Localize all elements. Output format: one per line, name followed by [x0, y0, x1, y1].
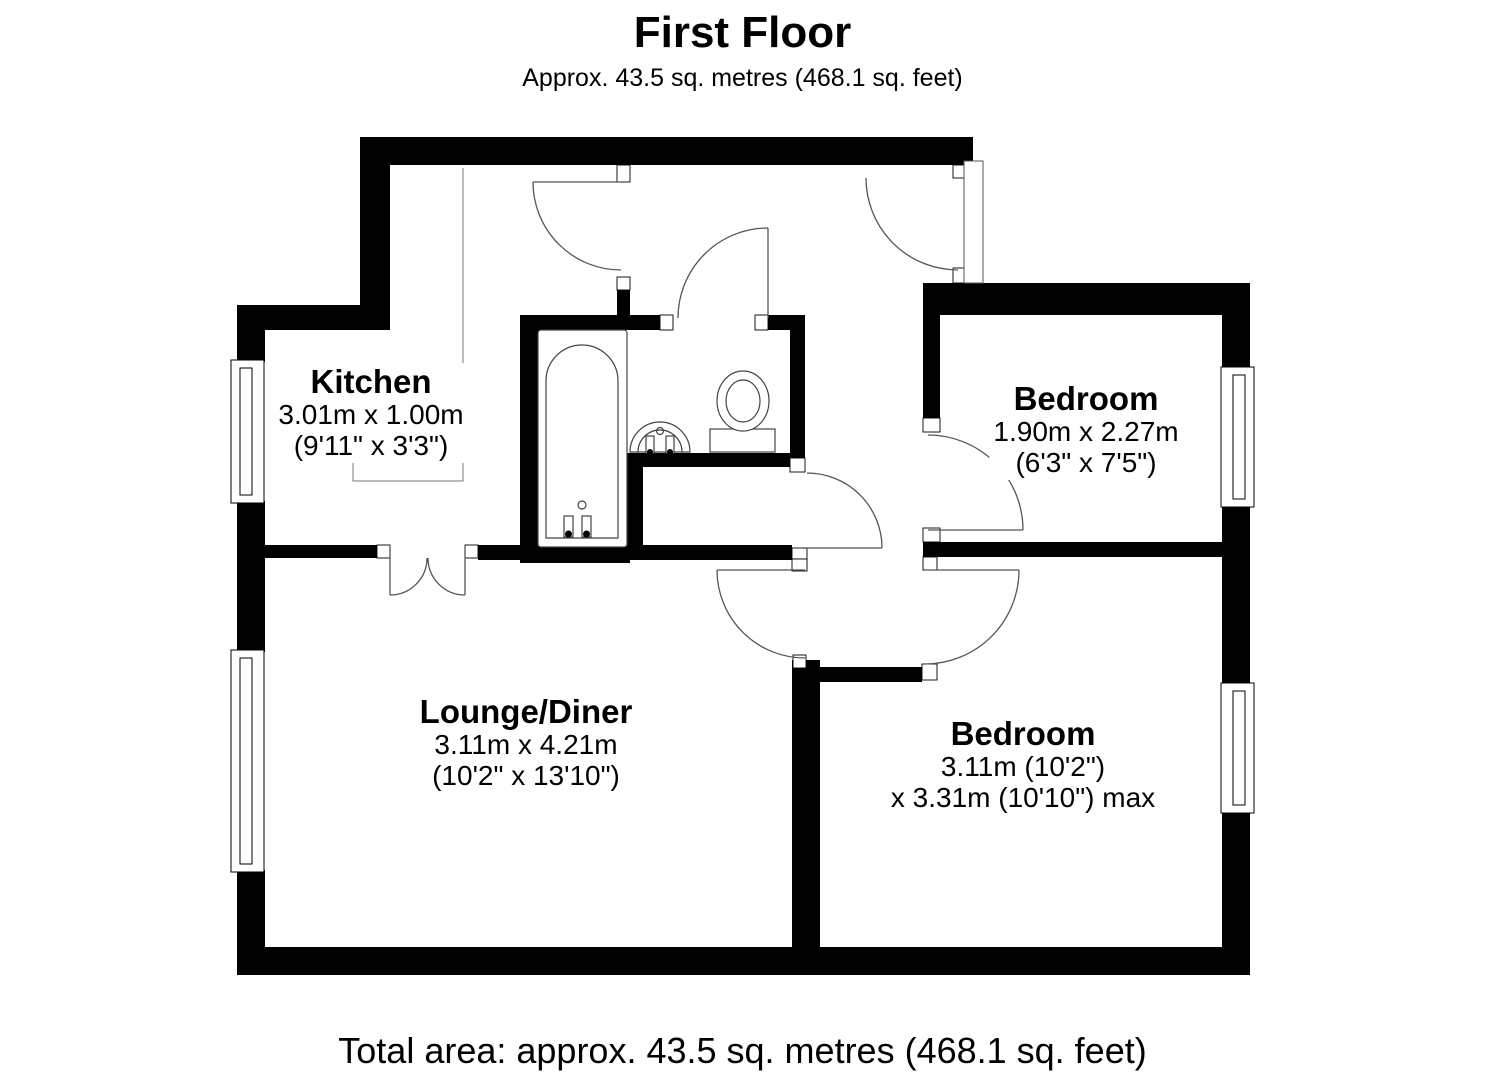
wall-bathroom-south	[627, 453, 805, 467]
room-name: Bedroom	[891, 716, 1155, 752]
room-name: Bedroom	[993, 381, 1178, 417]
wall-bottom	[237, 947, 1250, 975]
cupboard-door	[807, 473, 882, 548]
toilet-icon	[710, 371, 775, 452]
wall-left-seg1	[237, 305, 265, 362]
page-subtitle: Approx. 43.5 sq. metres (468.1 sq. feet)	[0, 64, 1485, 93]
entry-door	[866, 161, 983, 283]
room-dimensions-metric: 3.11m x 4.21m	[420, 730, 633, 761]
wall-bedroom1-top	[925, 283, 1250, 315]
room-dimensions-imperial: (10'2" x 13'10")	[420, 761, 633, 792]
room-dimensions-imperial: (9'11" x 3'3")	[278, 431, 463, 462]
wall-bedroom1-west	[923, 283, 940, 418]
lounge-door	[717, 570, 805, 658]
wall-left-seg2	[237, 501, 265, 652]
room-dimensions-metric: 1.90m x 2.27m	[993, 417, 1178, 448]
wall-bedroom2-top	[805, 667, 922, 682]
room-dimensions-metric: 3.01m x 1.00m	[278, 400, 463, 431]
room-dimensions-metric: 3.11m (10'2")	[891, 752, 1155, 783]
bedroom1-window	[1221, 367, 1254, 507]
wall-lounge-top-mid	[478, 545, 792, 560]
wall-landing-stub	[617, 290, 630, 318]
wall-lounge-bedroom2-divider	[792, 660, 820, 975]
bathroom-door	[678, 228, 768, 318]
wall-right-seg2	[1222, 505, 1250, 685]
wall-top	[360, 137, 973, 165]
sink-icon	[630, 422, 690, 455]
room-name: Kitchen	[278, 364, 463, 400]
page-title: First Floor	[0, 8, 1485, 58]
room-label-lounge-diner: Lounge/Diner 3.11m x 4.21m (10'2" x 13'1…	[416, 693, 637, 793]
fixtures	[538, 330, 775, 547]
room-label-bedroom-2: Bedroom 3.11m (10'2") x 3.31m (10'10") m…	[887, 715, 1159, 815]
room-label-bedroom-1: Bedroom 1.90m x 2.27m (6'3" x 7'5")	[989, 380, 1182, 480]
wall-bathroom-top-right	[768, 315, 805, 330]
landing-door	[533, 182, 621, 270]
wall-tub-east-stub	[627, 453, 643, 547]
kitchen-double-door	[390, 545, 465, 595]
bathtub-icon	[538, 330, 627, 547]
kitchen-window	[231, 360, 264, 503]
bedroom2-door	[925, 570, 1019, 664]
total-area-text: Total area: approx. 43.5 sq. metres (468…	[0, 1030, 1485, 1072]
floor-plan-drawing	[0, 0, 1485, 1080]
room-name: Lounge/Diner	[420, 694, 633, 730]
bedroom2-window	[1221, 683, 1254, 813]
wall-right-seg3	[1222, 811, 1250, 975]
wall-bathroom-west	[520, 315, 540, 547]
wall-tower-left	[360, 137, 390, 330]
floor-plan: First Floor Approx. 43.5 sq. metres (468…	[0, 0, 1485, 1080]
lounge-window	[231, 650, 264, 872]
room-label-kitchen: Kitchen 3.01m x 1.00m (9'11" x 3'3")	[274, 363, 467, 463]
wall-bedroom-divider	[923, 542, 1222, 557]
room-dimensions-imperial: x 3.31m (10'10") max	[891, 783, 1155, 814]
wall-lounge-top-west	[250, 545, 377, 558]
plan-header: First Floor Approx. 43.5 sq. metres (468…	[0, 8, 1485, 93]
room-dimensions-imperial: (6'3" x 7'5")	[993, 448, 1178, 479]
wall-bathroom-top-left	[523, 315, 660, 330]
wall-bathroom-east	[790, 330, 805, 458]
